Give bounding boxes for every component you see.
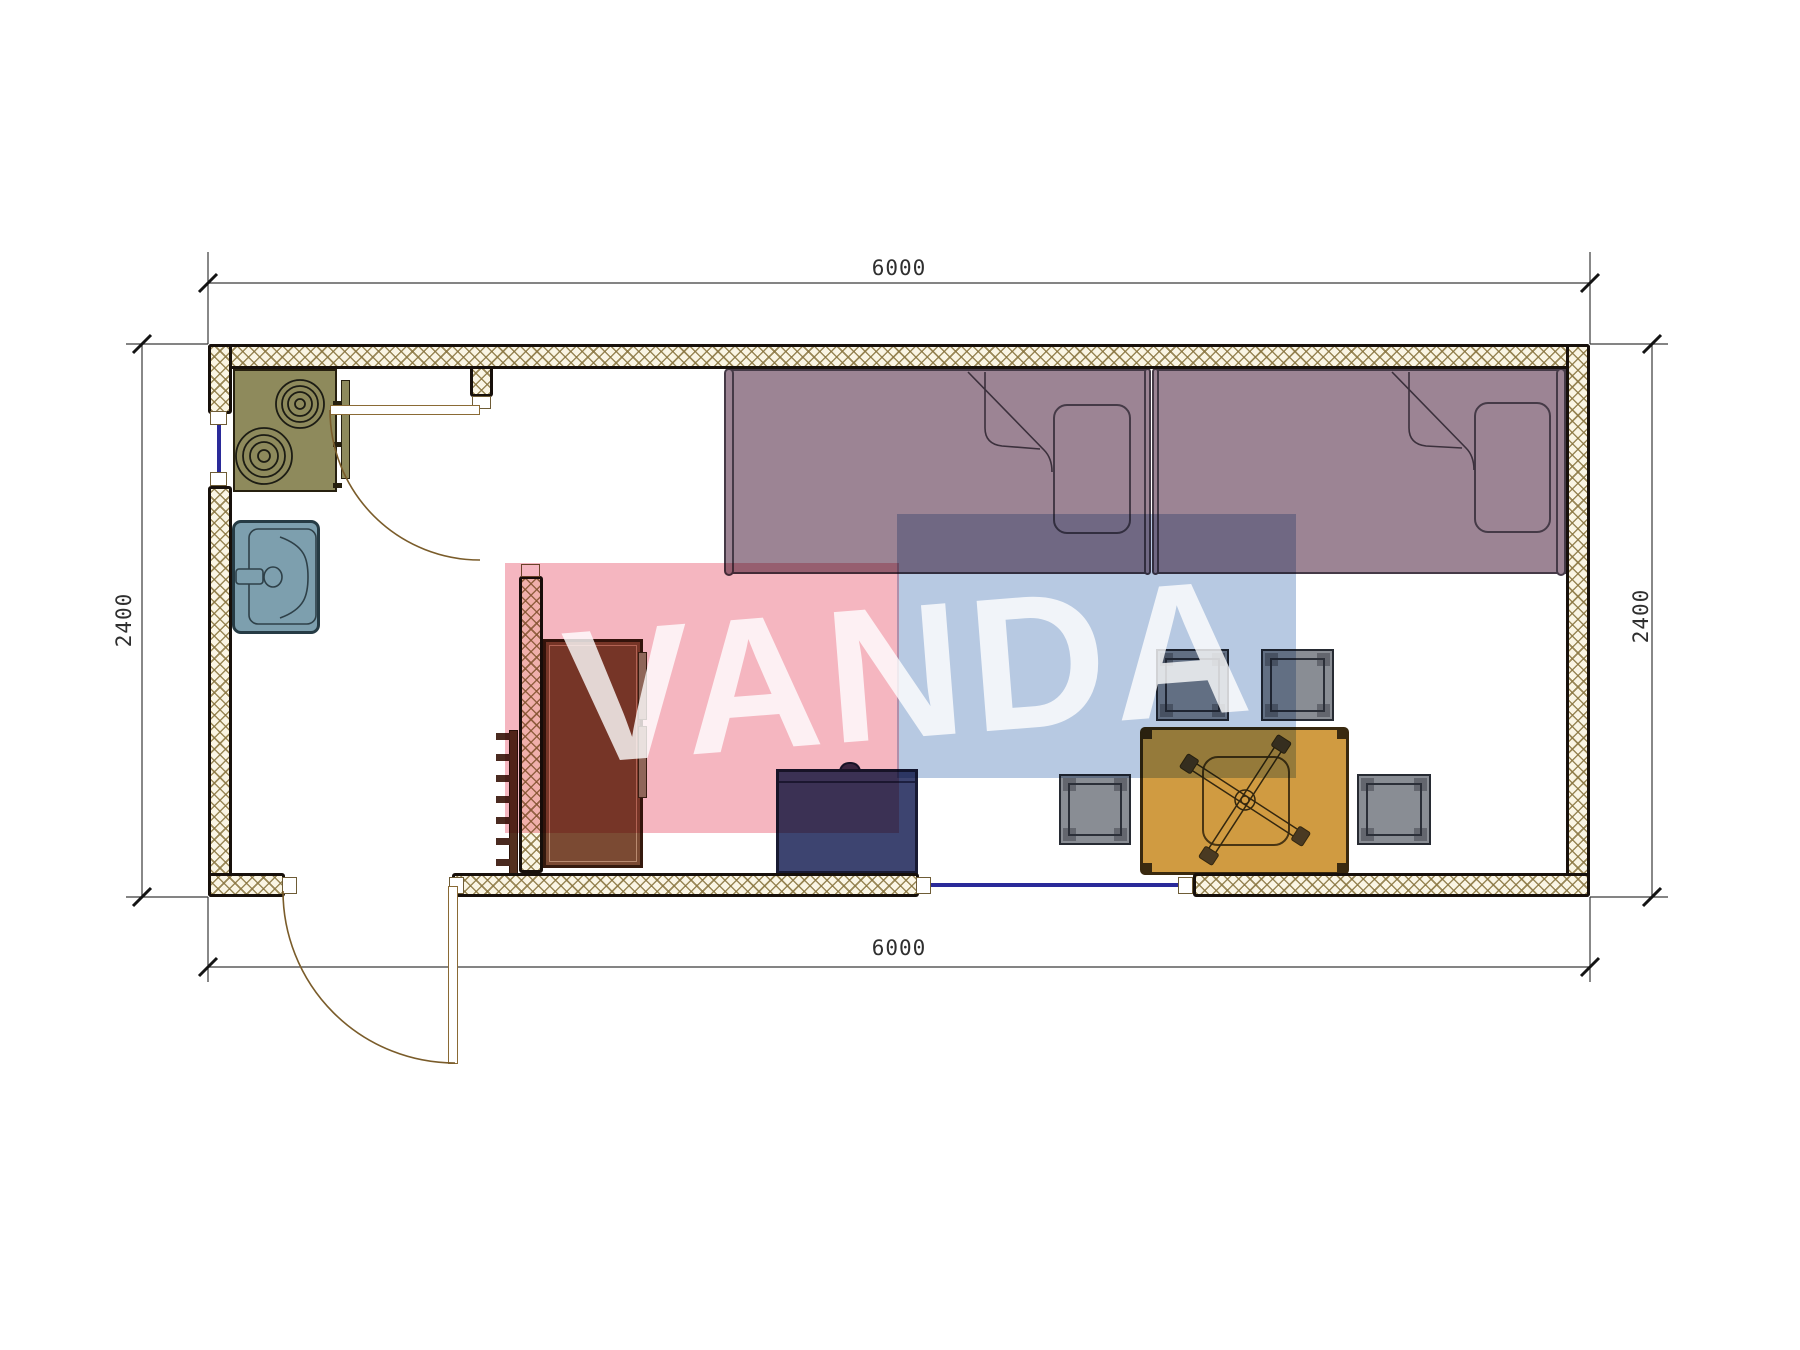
wall-bottom-left [208, 873, 285, 897]
stool-icon [1357, 774, 1431, 845]
stove-bracket [333, 442, 342, 447]
wall-top [208, 344, 1590, 369]
window-icon [931, 883, 1178, 887]
window-icon [217, 425, 221, 472]
dim-top: 6000 [849, 256, 949, 280]
stove-side-panel [341, 380, 350, 479]
dim-left: 2400 [112, 570, 136, 670]
door-leaf-interior [330, 405, 480, 415]
wall-left-lower [208, 486, 232, 897]
wall-bottom-middle [452, 873, 919, 897]
stool-icon [1059, 774, 1131, 845]
floor-plan-canvas: 6000 6000 2400 2400 [0, 0, 1800, 1350]
wall-bottom-right [1193, 873, 1590, 897]
pillow-icon [1474, 402, 1551, 533]
dim-bottom: 6000 [849, 936, 949, 960]
door-leaf-entrance [448, 886, 458, 1064]
bed-1-headboard [724, 368, 734, 576]
sink-icon [232, 520, 320, 634]
door-jamb [282, 877, 297, 894]
window-jamb [210, 411, 227, 425]
wall-door-pier [470, 366, 493, 397]
stove-bracket [333, 483, 342, 488]
dim-right: 2400 [1629, 566, 1653, 666]
window-jamb [916, 877, 931, 894]
bed-2-footboard [1556, 368, 1566, 576]
stove-icon [233, 369, 337, 492]
window-jamb [1178, 877, 1193, 894]
wall-right [1566, 344, 1590, 897]
window-jamb [210, 472, 227, 486]
wall-left-upper [208, 344, 232, 414]
